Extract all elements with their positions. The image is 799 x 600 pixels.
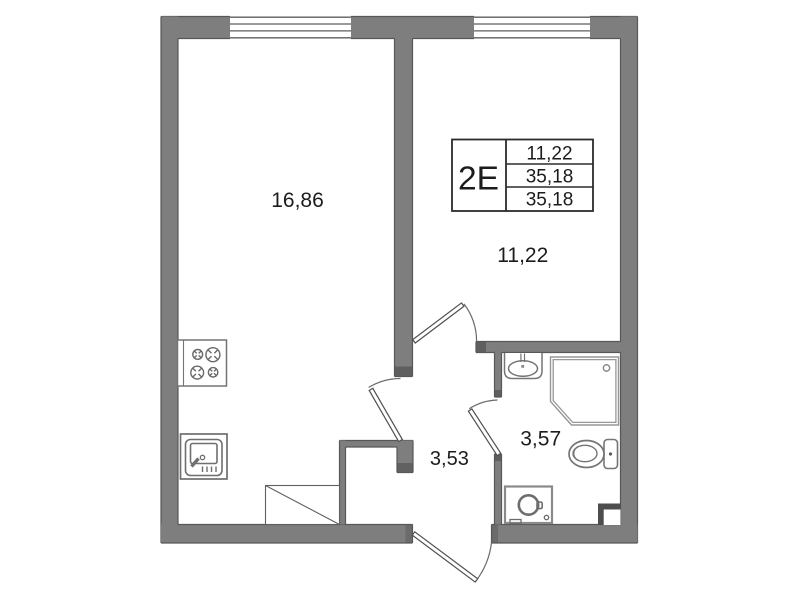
svg-text:2E: 2E: [458, 161, 499, 198]
svg-text:11,22: 11,22: [526, 144, 572, 165]
svg-text:3,57: 3,57: [520, 428, 561, 451]
svg-text:35,18: 35,18: [526, 167, 574, 188]
svg-text:3,53: 3,53: [430, 448, 469, 470]
svg-text:11,22: 11,22: [497, 244, 548, 267]
svg-text:16,86: 16,86: [271, 189, 324, 212]
svg-text:35,18: 35,18: [526, 190, 574, 211]
